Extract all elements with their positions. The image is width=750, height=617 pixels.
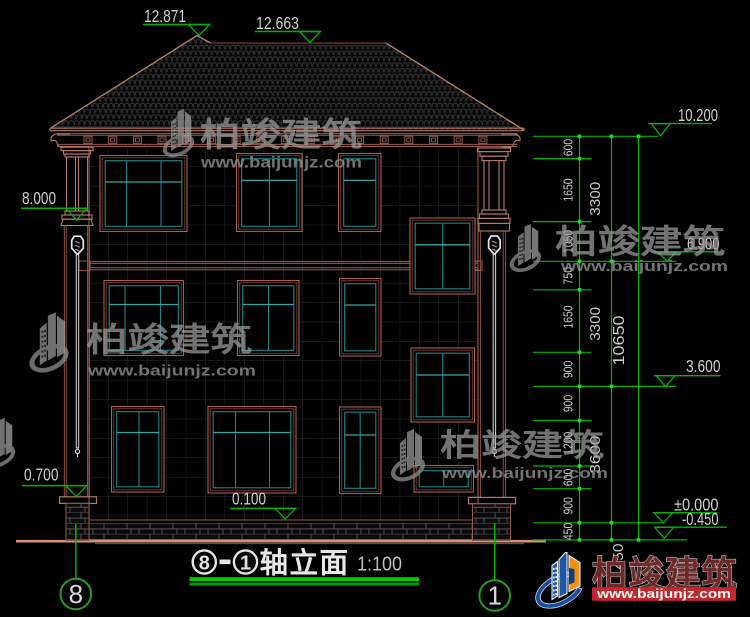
- svg-text:1: 1: [487, 581, 501, 611]
- svg-text:1:100: 1:100: [357, 554, 402, 576]
- svg-text:8.000: 8.000: [22, 188, 56, 208]
- svg-text:12.663: 12.663: [256, 13, 299, 33]
- svg-text:600: 600: [561, 139, 576, 157]
- svg-text:900: 900: [561, 361, 576, 379]
- svg-text:www.baijunjz.com: www.baijunjz.com: [441, 465, 608, 482]
- svg-text:450: 450: [561, 523, 576, 541]
- svg-text:0.100: 0.100: [232, 489, 266, 509]
- svg-text:柏竣建筑: 柏竣建筑: [86, 321, 252, 358]
- svg-text:www.baijunjz.com: www.baijunjz.com: [596, 586, 731, 601]
- svg-text:3.600: 3.600: [686, 356, 721, 376]
- svg-text:3300: 3300: [587, 182, 604, 216]
- svg-text:柏竣建筑: 柏竣建筑: [440, 428, 604, 463]
- svg-text:1650: 1650: [561, 306, 576, 329]
- svg-text:www.baijunjz.com: www.baijunjz.com: [560, 258, 728, 275]
- svg-text:-0.450: -0.450: [682, 509, 719, 529]
- svg-text:www.baijunjz.com: www.baijunjz.com: [87, 363, 256, 380]
- svg-text:900: 900: [561, 395, 576, 413]
- svg-text:10650: 10650: [611, 315, 628, 365]
- svg-text:柏竣建筑: 柏竣建筑: [555, 223, 725, 260]
- svg-text:1650: 1650: [561, 179, 576, 202]
- svg-text:900: 900: [561, 497, 576, 515]
- svg-text:3300: 3300: [587, 307, 604, 341]
- svg-text:轴立面: 轴立面: [260, 547, 350, 580]
- svg-text:12.871: 12.871: [144, 6, 186, 26]
- svg-text:10.200: 10.200: [678, 105, 718, 125]
- svg-text:8: 8: [199, 552, 210, 574]
- svg-text:柏竣建筑: 柏竣建筑: [200, 116, 362, 153]
- svg-text:www.baijunjz.com: www.baijunjz.com: [200, 155, 362, 172]
- svg-text:0.700: 0.700: [24, 465, 59, 485]
- svg-text:1: 1: [240, 552, 251, 574]
- svg-text:8: 8: [69, 579, 83, 609]
